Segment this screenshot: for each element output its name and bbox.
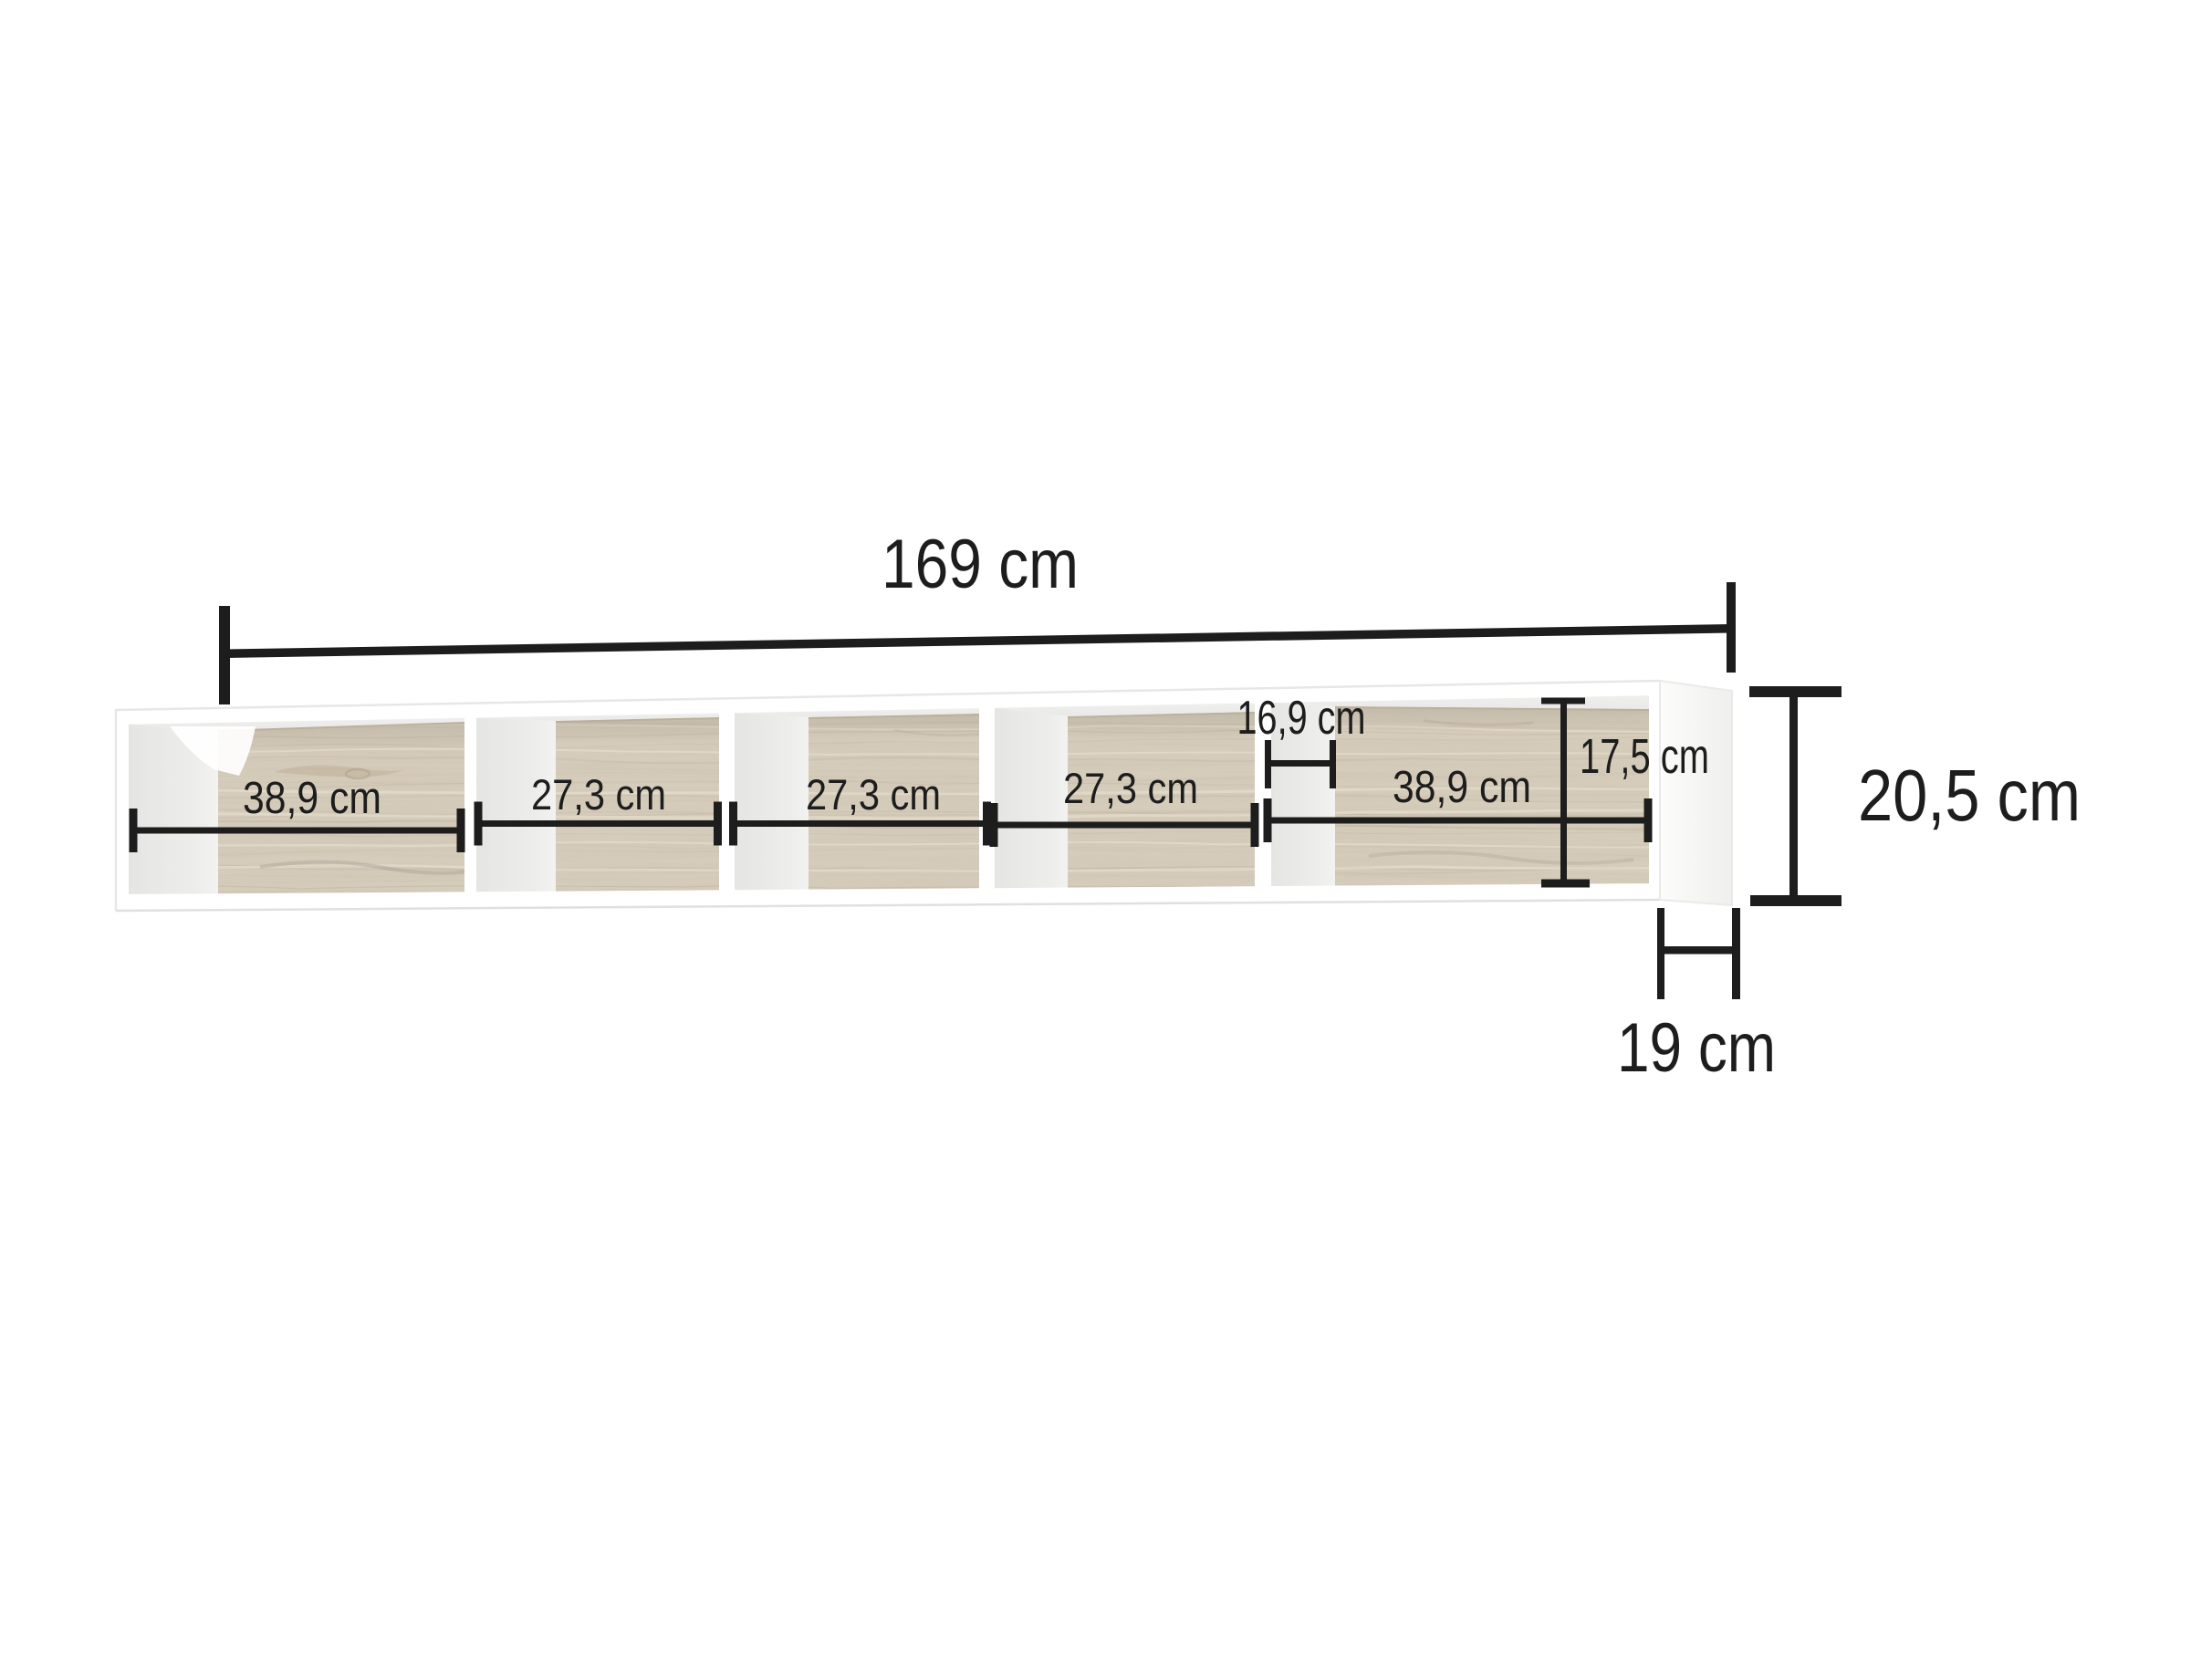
svg-text:27,3 cm: 27,3 cm <box>531 770 666 819</box>
svg-text:27,3 cm: 27,3 cm <box>1063 764 1198 812</box>
svg-text:38,9 cm: 38,9 cm <box>243 774 381 823</box>
svg-text:19 cm: 19 cm <box>1617 1009 1776 1087</box>
svg-text:20,5 cm: 20,5 cm <box>1858 755 2081 836</box>
svg-text:38,9 cm: 38,9 cm <box>1393 763 1531 812</box>
svg-text:27,3 cm: 27,3 cm <box>806 770 941 819</box>
svg-text:16,9 cm: 16,9 cm <box>1237 692 1366 745</box>
svg-text:17,5 cm: 17,5 cm <box>1580 730 1709 784</box>
svg-text:169 cm: 169 cm <box>882 526 1079 603</box>
